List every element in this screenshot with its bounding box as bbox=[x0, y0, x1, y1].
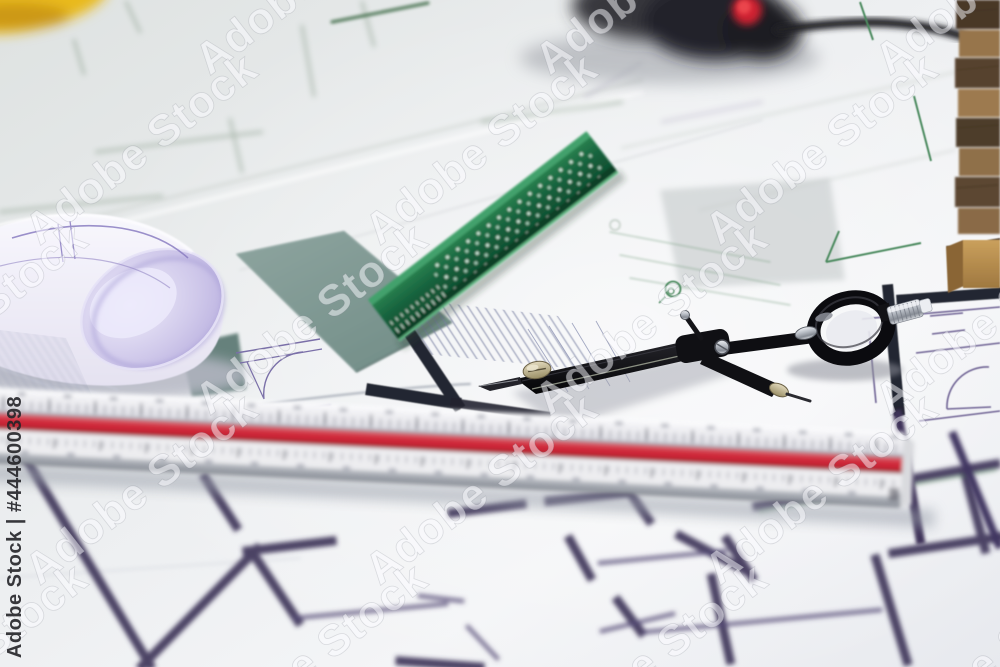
stock-photo-blueprint-desk: Adobe Stock Adobe Stock Adobe Stock Adob… bbox=[0, 0, 1000, 667]
photo-canvas: Adobe Stock Adobe Stock Adobe Stock Adob… bbox=[0, 0, 1000, 667]
stock-credit-text: Adobe Stock | #444600398 bbox=[4, 396, 26, 658]
wooden-block-base bbox=[946, 238, 1000, 293]
